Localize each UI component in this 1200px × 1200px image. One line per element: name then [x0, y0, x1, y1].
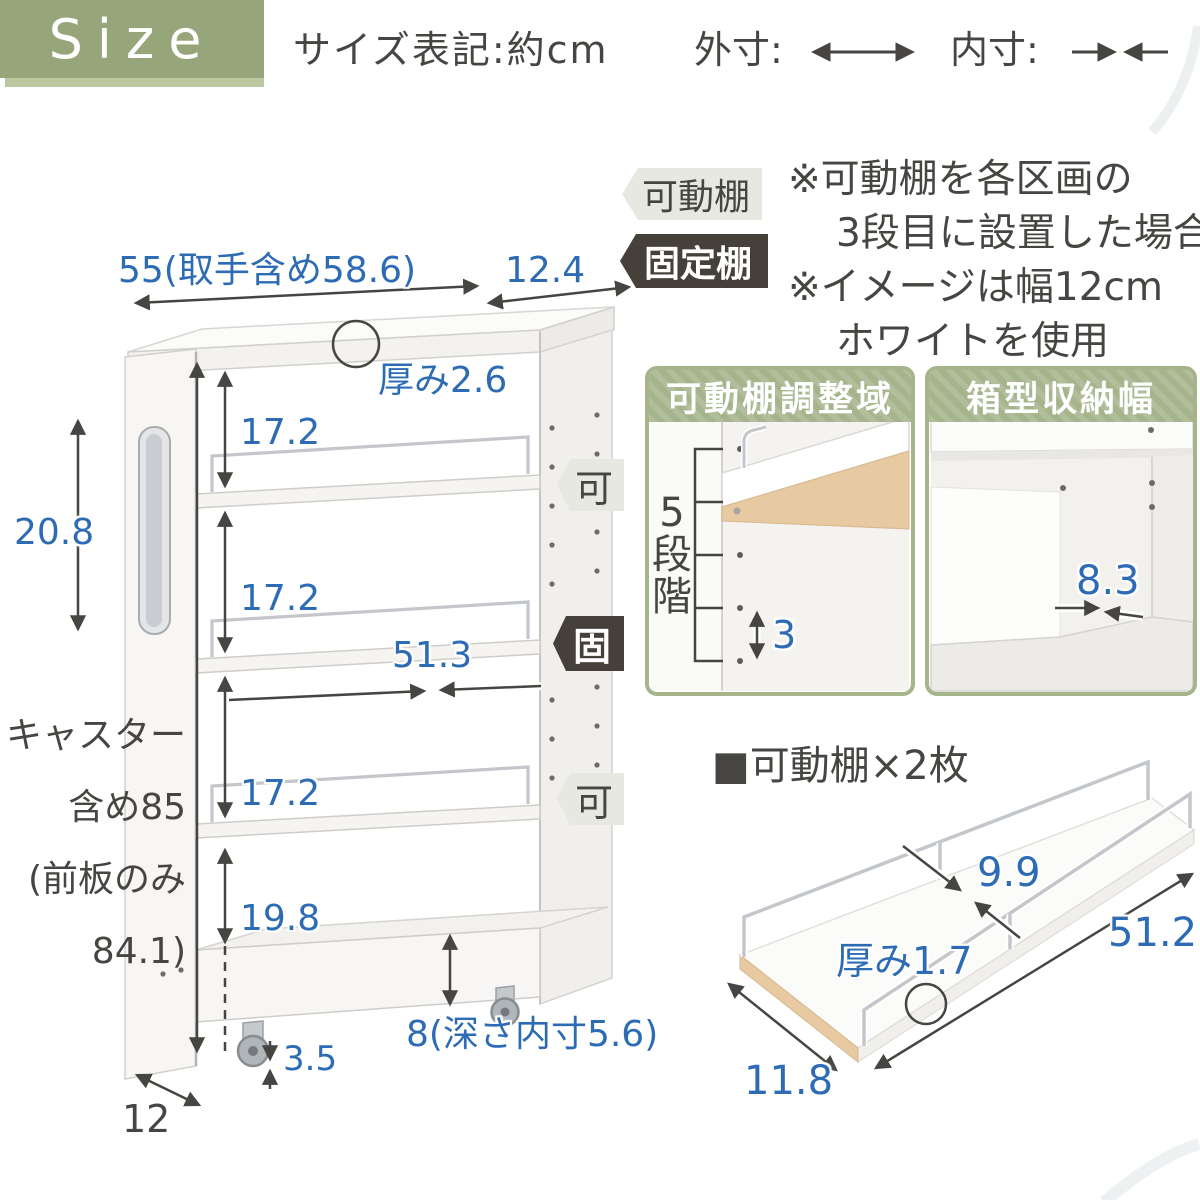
note-image-line1: ※イメージは幅12cm [788, 266, 1163, 311]
dim-total-height-line3: (前板のみ [0, 844, 186, 916]
movable-mini-label-2: 可 [575, 772, 613, 827]
movable-shelf-mini-tag-2: 可 [557, 773, 624, 825]
steps-char-3: 階 [652, 576, 692, 618]
dim-total-width: 55(取手含め58.6) [118, 250, 416, 291]
caster-left [238, 1021, 268, 1066]
note-movable-line1: ※可動棚を各区画の [788, 158, 1133, 203]
dim-total-height-line2: 含め85 [0, 772, 186, 844]
dim-total-height-line1: キャスター [0, 700, 186, 772]
shelf-dim-length: 51.2 [1108, 910, 1197, 956]
dim-gap2: 17.2 [240, 578, 320, 619]
note-image-line2: ホワイトを使用 [836, 320, 1109, 365]
dim-caster-height: 3.5 [283, 1040, 337, 1079]
movable-shelf-tag-label: 可動棚 [642, 168, 750, 220]
shelf-dim-thickness: 厚み1.7 [836, 940, 972, 984]
cart-handle [139, 427, 170, 634]
inner-dimension-label: 内寸: [950, 29, 1039, 73]
dim-top-thickness: 厚み2.6 [378, 360, 507, 401]
inner-dimension-arrow-icon [1070, 40, 1170, 64]
dim-total-height-line4: 84.1) [0, 916, 186, 988]
panel-adjust-pitch-label: 3 [772, 614, 796, 658]
dim-gap3: 17.2 [240, 773, 320, 814]
panel-adjust-steps-label: 5 段 階 [651, 492, 693, 618]
size-notation: サイズ表記:約cm [293, 29, 609, 73]
dim-gap4: 19.8 [240, 898, 320, 939]
shelf-dim-width: 9.9 [977, 850, 1041, 896]
size-badge: Size [0, 0, 264, 78]
panel-adjustable-shelf-title: 可動棚調整域 [649, 370, 911, 422]
dim-total-height: キャスター 含め85 (前板のみ 84.1) [0, 700, 186, 988]
movable-shelf-tag: 可動棚 [622, 168, 762, 220]
shelf-figure-title: ■可動棚×2枚 [712, 743, 969, 789]
panel-box-width-title: 箱型収納幅 [929, 370, 1193, 422]
outer-dimension-label: 外寸: [694, 29, 783, 73]
fixed-shelf-mini-tag: 固 [553, 616, 624, 671]
outer-dimension-arrow-icon [806, 40, 920, 64]
size-badge-shadow [5, 78, 264, 87]
size-diagram-page: Size サイズ表記:約cm 外寸: 内寸: 可動棚 固定棚 ※可動棚を各区画の… [0, 0, 1200, 1200]
panel-box-width-value: 8.3 [1076, 558, 1140, 604]
decor-swoosh-bottom [1104, 1144, 1199, 1200]
shelf-dim-depth: 11.8 [744, 1058, 833, 1104]
movable-mini-label-1: 可 [575, 458, 613, 513]
steps-char-1: 5 [659, 492, 684, 534]
fixed-shelf-tag: 固定棚 [620, 234, 768, 288]
dim-gap1: 17.2 [240, 412, 320, 453]
dim-inner-width: 51.3 [392, 635, 472, 676]
fixed-mini-label: 固 [573, 616, 611, 671]
note-movable-line2: 3段目に設置した場合 [836, 212, 1200, 257]
dim-base-depth: 12 [122, 1098, 170, 1142]
panel-box-width: 箱型収納幅 [925, 366, 1197, 696]
dim-box-depth: 8(深さ内寸5.6) [406, 1014, 658, 1055]
dim-top-depth: 12.4 [505, 250, 585, 291]
dim-handle-height: 20.8 [14, 512, 94, 553]
steps-char-2: 段 [652, 534, 692, 576]
movable-shelf-mini-tag-1: 可 [557, 459, 624, 511]
fixed-shelf-tag-label: 固定棚 [644, 235, 752, 287]
